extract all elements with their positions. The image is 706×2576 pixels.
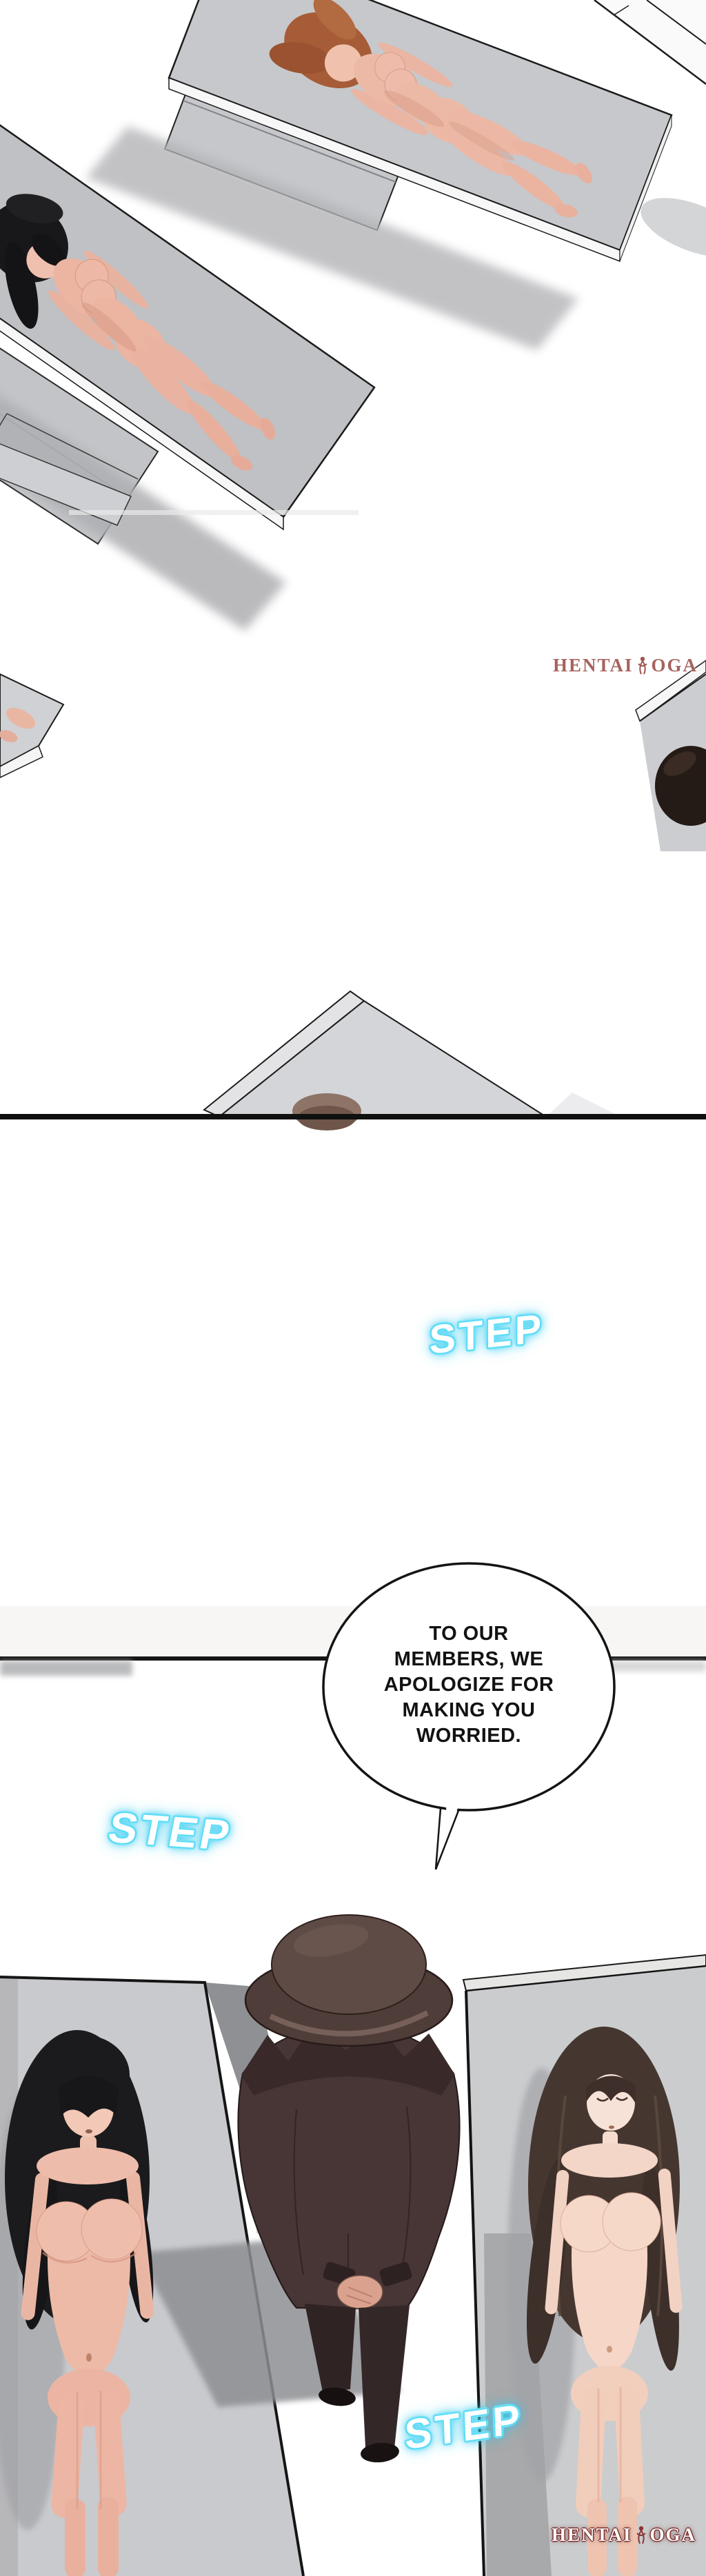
watermark-text-suffix: OGA xyxy=(652,655,698,676)
watermark-text-suffix: OGA xyxy=(650,2524,697,2546)
speech-bubble-text: TO OUR MEMBERS, WE APOLOGIZE FOR MAKING … xyxy=(352,1621,586,1749)
table-fragment-bottom-center xyxy=(204,991,621,1130)
bubble-line: WORRIED. xyxy=(352,1723,586,1749)
panel-border-line xyxy=(0,1114,706,1119)
panel-top-tables-scene xyxy=(0,0,706,1130)
table-fragment-right-edge xyxy=(636,660,706,851)
watermark-top: HENTAI OGA xyxy=(553,655,698,676)
scene-line-shadow-right xyxy=(609,1661,706,1672)
scene-line-left xyxy=(0,1656,329,1661)
watermark-text-prefix: HENTAI xyxy=(552,2524,632,2546)
sfx-step-2: STEP xyxy=(104,1803,236,1860)
watermark-bottom: HENTAI OGA xyxy=(552,2524,696,2546)
panel-bottom-corridor-scene xyxy=(0,1915,706,2576)
watermark-figure-icon xyxy=(634,2525,648,2546)
bubble-line: APOLOGIZE FOR xyxy=(352,1672,586,1698)
table-fragment-top-right xyxy=(590,0,706,84)
table-fragment-bottom-left xyxy=(0,674,63,778)
comic-page: TO OUR MEMBERS, WE APOLOGIZE FOR MAKING … xyxy=(0,0,706,2576)
bubble-line: TO OUR xyxy=(352,1621,586,1647)
scene-line-right xyxy=(609,1656,706,1661)
blur-streak xyxy=(69,510,359,515)
scene-line-shadow-left xyxy=(0,1661,132,1676)
watermark-text-prefix: HENTAI xyxy=(553,655,634,676)
comic-art-layer xyxy=(0,0,706,2576)
bubble-line: MEMBERS, WE xyxy=(352,1647,586,1672)
bubble-line: MAKING YOU xyxy=(352,1698,586,1723)
watermark-figure-icon xyxy=(636,656,649,676)
